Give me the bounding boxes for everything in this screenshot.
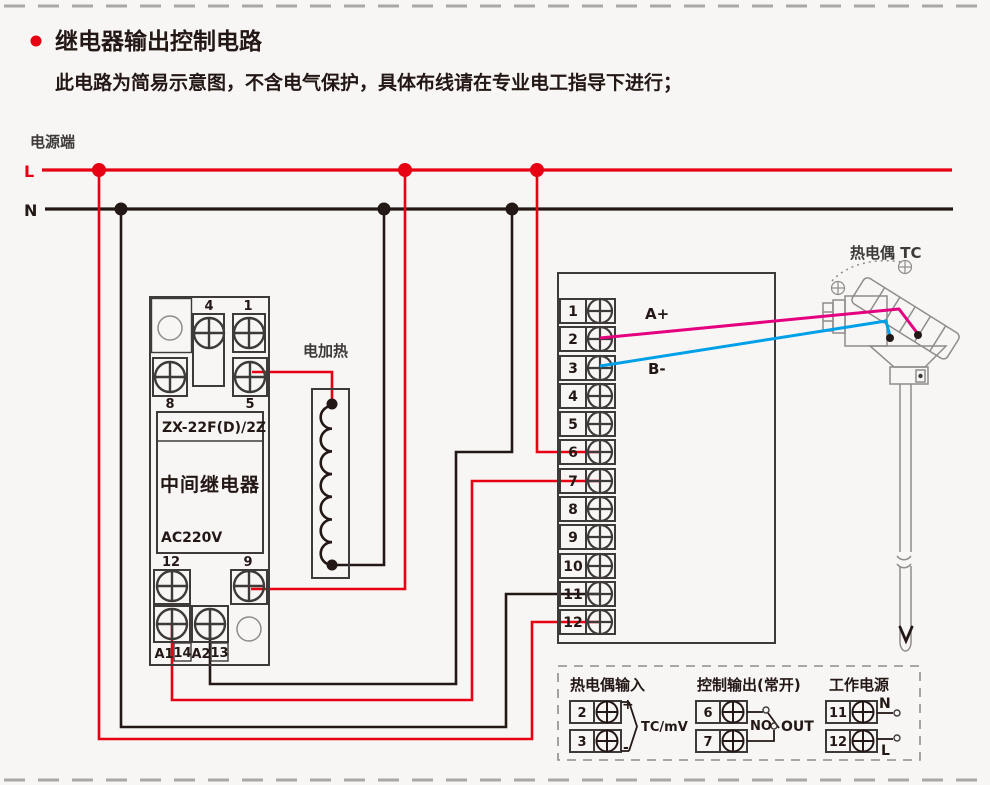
terminal-number: 12	[563, 615, 582, 631]
terminal-number: 4	[568, 389, 578, 405]
junction-dot	[530, 163, 544, 177]
relay-terminal-1-label: 1	[243, 299, 252, 314]
terminal-row-1: 1	[560, 299, 615, 323]
wire-a2-to-n	[210, 209, 512, 684]
terminal-number: 8	[568, 502, 578, 518]
terminal-number: 2	[568, 332, 578, 348]
relay-terminal-14-label: 14	[173, 646, 191, 661]
terminal-row-7: 7	[560, 469, 615, 493]
junction-dot	[398, 163, 412, 177]
terminal-number: 11	[563, 587, 582, 603]
terminal-row-12: 12	[560, 610, 615, 634]
terminal-row-11: 11	[560, 582, 615, 606]
wire-a1-to-terminal7	[172, 481, 600, 700]
page-subtitle: 此电路为简易示意图，不含电气保护，具体布线请在专业电工指导下进行；	[55, 71, 682, 94]
no-contact-label: NO	[750, 719, 772, 734]
power-node	[894, 735, 900, 741]
relay-terminal-12-label: 12	[162, 555, 180, 570]
relay-terminal-8-label: 8	[165, 397, 174, 412]
heater-bottom-node	[327, 560, 338, 571]
legend-terminal-number: 2	[577, 706, 586, 721]
terminal-number: 10	[563, 559, 583, 575]
relay-screw-9	[234, 571, 264, 601]
polarity-minus-label: -	[623, 740, 629, 756]
legend-box: 热电偶输入 2 3 + - TC/mV 控制输出(常开) 6 7 NO OUT …	[558, 666, 920, 760]
terminal-number: 7	[568, 474, 578, 490]
terminal-number: 1	[568, 304, 578, 320]
relay-screw-a2	[195, 609, 225, 639]
relay-terminal-9-label: 9	[243, 555, 252, 570]
legend-work-power: 工作电源 11 12 N L	[826, 676, 900, 759]
probe-tip-arrow-icon	[900, 627, 912, 641]
wire-thermocouple-b-minus	[600, 321, 890, 366]
relay-screw-5	[235, 362, 265, 392]
relay-terminal-a2-label: A2	[191, 647, 210, 662]
terminal-number: 3	[568, 361, 578, 377]
relay-model-label: ZX-22F(D)/2Z	[162, 420, 266, 436]
junction-dot	[92, 163, 106, 177]
legend-terminal-number: 6	[703, 706, 712, 721]
relay-terminal-5-label: 5	[245, 397, 254, 412]
wire-b-minus-label: B-	[648, 360, 666, 378]
power-node	[894, 710, 900, 716]
wiring-diagram: 继电器输出控制电路 此电路为简易示意图，不含电气保护，具体布线请在专业电工指导下…	[0, 0, 990, 785]
cap-screw-icon	[832, 282, 845, 295]
legend-terminal-number: 11	[829, 706, 847, 721]
terminal-row-9: 9	[560, 525, 615, 549]
heater-top-node	[327, 399, 338, 410]
heater: 电加热	[303, 342, 349, 578]
relay-mount-hole	[158, 316, 182, 340]
power-rails: 电源端 L N	[24, 133, 953, 220]
terminal-row-5: 5	[560, 412, 615, 436]
rail-n-label: N	[24, 201, 37, 220]
legend-terminal-number: 3	[577, 735, 586, 750]
legend-tc-input: 热电偶输入 2 3 + - TC/mV	[570, 676, 688, 756]
legend-terminal-number: 12	[829, 735, 847, 750]
legend-work-power-title: 工作电源	[829, 676, 889, 694]
thermocouple-label: 热电偶 TC	[850, 244, 921, 262]
terminal-row-2: 2	[560, 327, 615, 351]
out-label: OUT	[781, 719, 814, 735]
terminal-row-10: 10	[560, 554, 615, 578]
controller-terminal-strip: 1 2 3 4 5 6 7 8	[558, 273, 775, 643]
power-terminal-label: 电源端	[30, 133, 75, 151]
switch-contact-node	[763, 707, 769, 713]
terminal-row-3: 3	[560, 356, 615, 380]
terminal-number: 5	[568, 417, 578, 433]
terminal-number: 6	[568, 445, 578, 461]
thermocouple-probe	[897, 384, 912, 651]
relay-block: 4 1 8 5 ZX-22F(D)/2Z 中间继电器 AC220V 12 9 A…	[150, 297, 269, 665]
page-title: 继电器输出控制电路	[55, 28, 263, 55]
relay-screw-12	[157, 571, 187, 601]
manual-page: 继电器输出控制电路 此电路为简易示意图，不含电气保护，具体布线请在专业电工指导下…	[0, 0, 990, 785]
wire-n-to-heater	[332, 209, 384, 565]
relay-terminal-a1-label: A1	[154, 647, 173, 662]
power-l-label: L	[881, 743, 890, 759]
thermocouple-funnel	[870, 346, 946, 367]
relay-screw-a1	[157, 609, 187, 639]
legend-terminal-number: 7	[703, 735, 712, 750]
terminal-row-8: 8	[560, 497, 615, 521]
legend-tc-input-title: 热电偶输入	[570, 676, 645, 694]
junction-dot	[115, 203, 128, 216]
terminal-row-4: 4	[560, 384, 615, 408]
relay-mount-hole	[237, 617, 261, 641]
terminal-number: 9	[568, 530, 578, 546]
bullet-icon	[31, 36, 42, 47]
legend-control-output-title: 控制输出(常开)	[697, 676, 801, 694]
relay-name-label: 中间继电器	[160, 473, 260, 496]
wire-l-to-relay9	[251, 170, 405, 589]
power-n-label: N	[879, 696, 891, 712]
relay-screw-1	[234, 318, 264, 348]
heater-coil	[321, 406, 332, 565]
rail-l-label: L	[24, 162, 34, 181]
junction-dot	[378, 203, 391, 216]
wire-a-plus-label: A+	[645, 305, 669, 323]
header: 继电器输出控制电路 此电路为简易示意图，不含电气保护，具体布线请在专业电工指导下…	[31, 28, 683, 94]
terminal-row-6: 6	[560, 440, 615, 464]
relay-voltage-label: AC220V	[161, 530, 222, 546]
relay-screw-8	[155, 362, 185, 392]
signal-type-label: TC/mV	[641, 720, 688, 735]
relay-screw-4	[194, 318, 224, 348]
heater-label: 电加热	[303, 342, 348, 360]
relay-terminal-13-label: 13	[210, 646, 228, 661]
legend-control-output: 控制输出(常开) 6 7 NO OUT	[696, 676, 814, 752]
relay-terminal-4-label: 4	[204, 299, 213, 314]
junction-dot	[506, 203, 519, 216]
